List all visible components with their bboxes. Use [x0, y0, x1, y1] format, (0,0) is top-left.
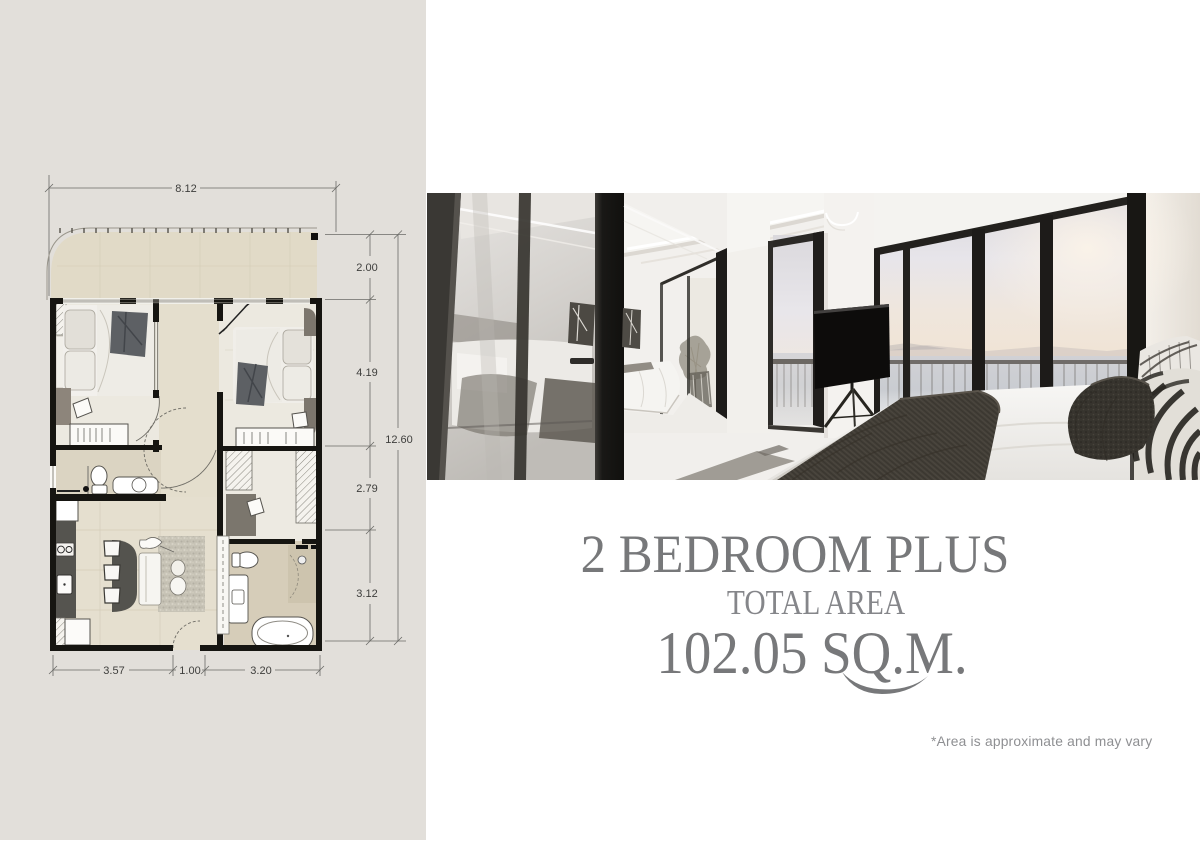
- svg-text:8.12: 8.12: [175, 183, 196, 195]
- svg-text:1.00: 1.00: [179, 665, 200, 677]
- svg-text:12.60: 12.60: [385, 434, 413, 446]
- svg-text:2.00: 2.00: [356, 262, 377, 274]
- svg-text:4.19: 4.19: [356, 367, 377, 379]
- svg-text:3.20: 3.20: [250, 665, 271, 677]
- svg-text:2.79: 2.79: [356, 483, 377, 495]
- svg-text:3.57: 3.57: [103, 665, 124, 677]
- svg-text:3.12: 3.12: [356, 588, 377, 600]
